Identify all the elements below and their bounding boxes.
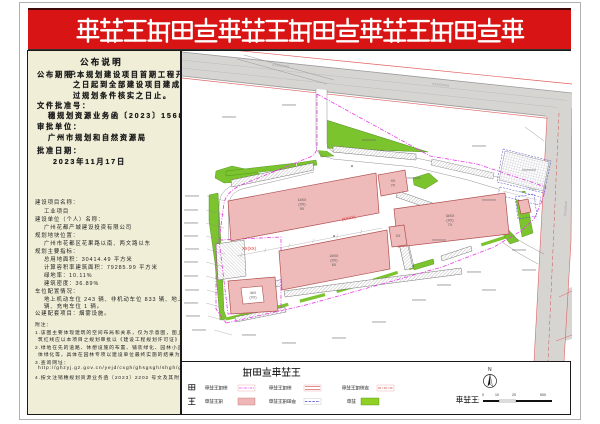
svg-text:7X: 7X xyxy=(391,183,396,187)
svg-text:XXXXXXX: XXXXXXX xyxy=(407,176,421,180)
svg-text:XXXXXXX: XXXXXXX xyxy=(472,144,486,148)
svg-text:XXXXXXX: XXXXXXX xyxy=(332,336,346,340)
svg-text:(XX): (XX) xyxy=(446,218,453,222)
svg-text:9X: 9X xyxy=(300,207,305,211)
svg-text:3#XX: 3#XX xyxy=(446,214,455,218)
svg-text:XXXXXXX: XXXXXXX xyxy=(242,333,256,337)
svg-text:XXXXXXX: XXXXXXX xyxy=(437,283,451,287)
svg-text:1#XX: 1#XX xyxy=(298,198,307,202)
svg-text:(XX): (XX) xyxy=(249,295,256,299)
svg-text:10: 10 xyxy=(495,393,499,397)
svg-text:50X: 50X xyxy=(540,393,547,397)
svg-text:XXXXXXX: XXXXXXX xyxy=(372,320,386,324)
svg-text:XXXXXXX: XXXXXXX xyxy=(482,198,496,202)
svg-text:XX(XX): XX(XX) xyxy=(242,246,257,251)
svg-text:XXXXXXX: XXXXXXX xyxy=(222,115,236,119)
svg-text:XXXXXXX: XXXXXXX xyxy=(282,103,296,107)
svg-text:0: 0 xyxy=(482,393,484,397)
svg-text:XXXXXXX: XXXXXXX xyxy=(184,234,198,238)
svg-text:(XX): (XX) xyxy=(330,258,337,262)
svg-text:XX: XX xyxy=(396,234,401,238)
svg-text:XXXXXXX: XXXXXXX xyxy=(522,268,536,272)
svg-text:XXXXXXX: XXXXXXX xyxy=(184,301,198,305)
svg-text:XXXXXXX: XXXXXXX xyxy=(184,221,198,225)
svg-text:7X: 7X xyxy=(448,223,453,227)
svg-text:N: N xyxy=(488,367,492,373)
svg-text:XXXXXXX: XXXXXXX xyxy=(512,248,526,252)
svg-text:(XX): (XX) xyxy=(298,202,305,206)
svg-text:XXXXXXX: XXXXXXX xyxy=(412,298,426,302)
svg-text:20: 20 xyxy=(512,393,516,397)
svg-text:XX: XX xyxy=(391,179,396,183)
svg-text:XXXXXXX: XXXXXXX xyxy=(185,247,199,251)
svg-text:XXXXXXX: XXXXXXX xyxy=(184,260,198,264)
svg-text::: : xyxy=(478,399,480,405)
svg-text:4#X: 4#X xyxy=(250,291,257,295)
svg-text:XXXXXXX: XXXXXXX xyxy=(185,288,199,292)
svg-text:XXXXXXX: XXXXXXX xyxy=(282,341,296,345)
svg-text:XXXXXXX: XXXXXXX xyxy=(192,328,206,332)
svg-text:XXXXXXX: XXXXXXX xyxy=(184,274,198,278)
svg-text:6X: 6X xyxy=(332,263,337,267)
svg-text:XXXXXXX: XXXXXXX xyxy=(432,238,446,242)
svg-text:XXXXXXX: XXXXXXX xyxy=(482,288,496,292)
svg-text:XXXXXXX: XXXXXXX xyxy=(186,314,200,318)
svg-text:XXXXXXX: XXXXXXX xyxy=(522,168,536,172)
svg-text:XXXXXXX: XXXXXXX xyxy=(184,208,198,212)
svg-text:2#XX: 2#XX xyxy=(330,254,339,258)
svg-text:XXXXXXX: XXXXXXX xyxy=(362,138,376,142)
svg-text:XXXXXXX: XXXXXXX xyxy=(467,270,481,274)
svg-text:XXXXXXX: XXXXXXX xyxy=(185,194,199,198)
